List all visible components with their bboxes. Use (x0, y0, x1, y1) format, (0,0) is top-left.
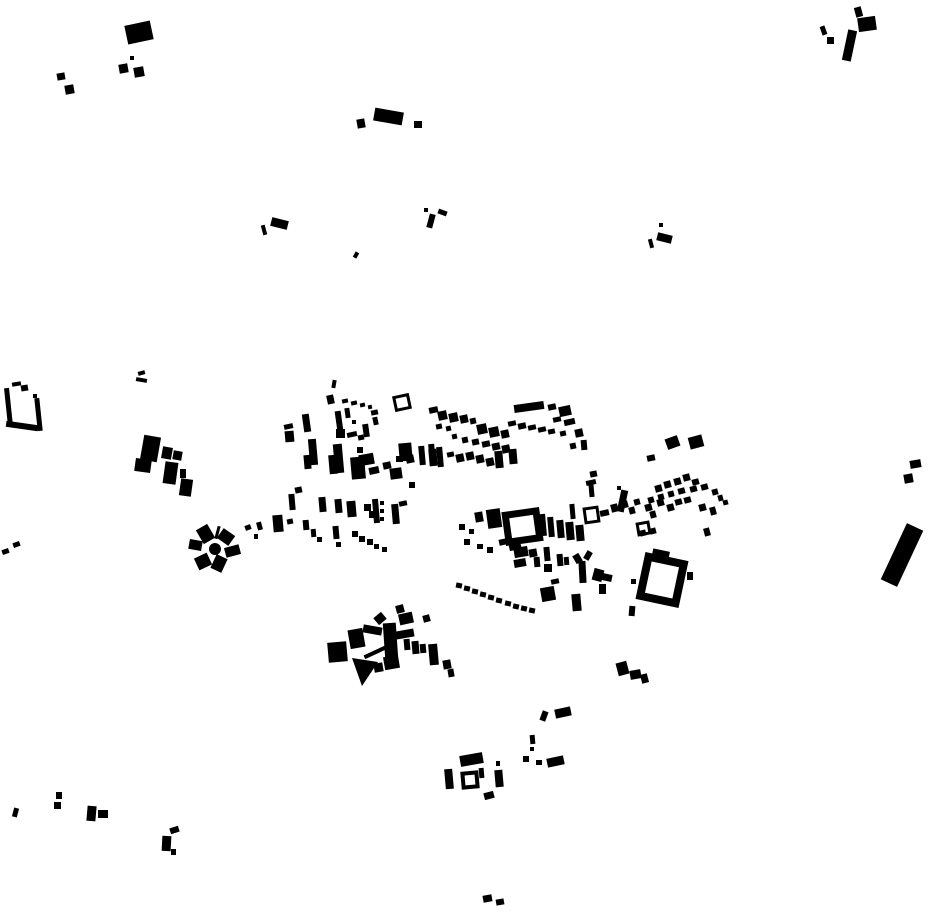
building-footprint (318, 497, 326, 513)
building-footprint (677, 487, 685, 495)
building-footprint (256, 521, 263, 530)
building-footprint (437, 209, 447, 217)
building-footprint (513, 558, 526, 568)
building-footprint (703, 527, 711, 536)
building-footprint (303, 455, 311, 470)
building-footprint (683, 496, 691, 504)
building-footprint (536, 760, 542, 765)
building-footprint (367, 539, 373, 545)
building-footprint (538, 426, 547, 433)
building-footprint (571, 594, 581, 612)
building-footprint (574, 428, 583, 437)
building-footprint (717, 494, 723, 501)
building-footprint (628, 506, 636, 514)
building-footprint (391, 504, 400, 525)
building-footprint (476, 423, 488, 435)
building-footprint (564, 557, 570, 565)
building-footprint (359, 536, 365, 542)
building-footprint (691, 478, 699, 486)
building-footprint (456, 582, 463, 588)
building-footprint (210, 554, 227, 573)
building-footprint (162, 836, 172, 851)
building-footprint (640, 673, 649, 684)
building-footprint (352, 658, 378, 686)
building-footprint (523, 756, 529, 762)
building-footprint (272, 515, 283, 533)
building-footprint (547, 403, 556, 411)
building-footprint (673, 477, 682, 486)
building-footprint (437, 410, 448, 421)
building-footprint (56, 72, 65, 80)
building-footprint (508, 420, 517, 427)
building-footprint (459, 414, 468, 423)
building-footprint (610, 503, 619, 513)
building-footprint (373, 612, 386, 625)
building-footprint (667, 490, 674, 497)
building-footprint (674, 498, 682, 506)
building-footprint (194, 553, 212, 571)
building-footprint (428, 406, 438, 414)
building-footprint (134, 458, 152, 473)
building-footprint (469, 417, 476, 424)
building-footprint (459, 752, 484, 767)
building-footprint (428, 644, 439, 666)
building-footprint (396, 456, 403, 462)
building-footprint (420, 644, 427, 653)
building-footprint (285, 431, 295, 443)
building-footprint (629, 606, 636, 616)
building-footprint (180, 469, 186, 478)
building-footprint (448, 412, 459, 423)
building-footprint (124, 21, 153, 45)
building-footprint (179, 478, 193, 497)
building-footprint (436, 423, 443, 429)
building-footprint (169, 826, 179, 834)
building-footprint (136, 377, 148, 383)
building-footprint (353, 251, 359, 258)
building-footprint (494, 770, 503, 788)
building-footprint (581, 440, 588, 450)
building-footprint (12, 541, 20, 548)
building-footprint (33, 394, 37, 398)
building-footprint (689, 485, 697, 493)
building-footprint (505, 600, 512, 606)
building-footprint (474, 511, 484, 522)
building-footprint (362, 624, 382, 635)
building-footprint (326, 394, 335, 404)
building-footprint (382, 547, 387, 552)
building-footprint (261, 225, 267, 236)
building-footprint (336, 429, 345, 438)
building-footprint (472, 588, 479, 594)
building-footprint (414, 121, 422, 128)
building-footprint (311, 529, 317, 537)
building-footprint (528, 424, 537, 431)
building-footprint (644, 503, 653, 512)
building-footprint (140, 435, 161, 463)
building-footprint (334, 499, 342, 514)
building-footprint (356, 118, 365, 128)
building-footprint (857, 16, 877, 32)
building-footprint (395, 628, 414, 639)
building-footprint (368, 466, 379, 475)
building-footprint (482, 894, 492, 902)
building-footprint (399, 500, 408, 507)
building-footprint (709, 506, 717, 515)
building-footprint (477, 544, 483, 549)
building-footprint (86, 806, 96, 822)
building-footprint (530, 735, 536, 744)
building-footprint (539, 710, 548, 721)
building-footprint (588, 484, 594, 497)
building-footprint (270, 217, 289, 230)
building-footprint (422, 614, 431, 623)
building-footprint (161, 446, 173, 460)
building-footprint (556, 554, 563, 566)
building-footprint (521, 605, 528, 611)
building-footprint (471, 438, 479, 445)
building-footprint (344, 408, 350, 419)
building-footprint (447, 669, 454, 678)
building-footprint (563, 418, 575, 426)
building-footprint (827, 37, 834, 44)
building-footprint (302, 414, 311, 433)
building-footprint (546, 755, 564, 767)
building-footprint (629, 669, 641, 680)
building-footprint (56, 792, 62, 799)
building-footprint (543, 547, 550, 561)
building-footprint (382, 461, 391, 470)
building-footprint (21, 384, 29, 391)
building-footprint (98, 810, 108, 818)
building-footprint (303, 520, 310, 530)
building-footprint (659, 223, 663, 227)
building-footprint (404, 639, 411, 650)
building-footprint (347, 431, 358, 438)
building-footprint (383, 655, 400, 670)
building-footprint (508, 449, 517, 465)
building-footprint (631, 579, 636, 584)
figure-ground-map (0, 0, 930, 924)
building-footprint (244, 524, 251, 531)
building-footprint (544, 564, 552, 572)
building-footprint (479, 768, 485, 778)
building-footprint (722, 499, 728, 505)
building-footprint (534, 557, 541, 567)
building-footprint (351, 400, 358, 405)
building-footprint (357, 447, 363, 453)
building-footprint (447, 451, 455, 457)
building-footprint (494, 451, 503, 469)
building-footprint (317, 537, 322, 542)
building-footprint (54, 802, 61, 809)
building-footprint (288, 494, 295, 510)
building-footprint (491, 442, 500, 451)
building-footprint (389, 467, 402, 480)
building-footprint (599, 509, 609, 517)
building-footprint (554, 706, 572, 718)
building-footprint (698, 503, 707, 512)
building-footprint (854, 6, 863, 17)
building-footprint (373, 108, 404, 126)
building-footprint (666, 503, 675, 512)
building-footprint (409, 482, 415, 488)
building-footprint (350, 456, 366, 479)
building-footprint (558, 405, 572, 417)
building-footprint (352, 531, 358, 537)
building-footprint (459, 524, 465, 530)
building-footprint (485, 457, 494, 466)
building-footprint (411, 641, 419, 655)
building-footprint (465, 451, 474, 460)
building-footprint (513, 603, 520, 609)
building-footprint (374, 544, 379, 549)
building-footprint (287, 518, 294, 524)
building-footprint (163, 461, 179, 485)
building-footprint (380, 501, 384, 505)
building-footprint (617, 486, 621, 490)
building-footprint (583, 550, 593, 561)
building-footprint (12, 381, 22, 387)
building-footprint (487, 547, 493, 553)
building-footprint (368, 405, 373, 410)
building-footprint (405, 454, 414, 463)
building-footprint (589, 470, 597, 477)
building-footprint (4, 388, 13, 426)
building-footprint (371, 409, 379, 415)
building-footprint (496, 898, 505, 905)
building-footprint (514, 401, 545, 413)
building-footprint (881, 523, 924, 587)
building-footprint (488, 426, 500, 438)
building-footprint (398, 612, 414, 626)
building-footprint (530, 747, 534, 751)
building-footprint (842, 29, 857, 61)
building-footprint (656, 232, 672, 243)
building-footprint (648, 239, 654, 249)
building-footprint (188, 539, 203, 551)
building-footprint (616, 661, 630, 676)
building-footprint (372, 417, 379, 426)
building-footprint (528, 548, 537, 557)
building-footprint (373, 662, 383, 672)
building-footprint (372, 499, 380, 523)
building-footprint (464, 585, 471, 591)
building-footprint (548, 428, 556, 434)
building-footprint (687, 572, 693, 580)
building-footprint (64, 84, 74, 94)
building-footprint (446, 426, 452, 432)
building-footprint (475, 454, 484, 463)
building-footprint (462, 772, 477, 787)
building-footprint (578, 561, 586, 583)
building-footprint (496, 761, 500, 766)
building-footprint (481, 440, 490, 448)
building-footprint (342, 398, 349, 403)
building-footprint (380, 517, 384, 521)
building-footprint (380, 509, 384, 513)
building-footprint (461, 436, 468, 443)
building-footprint (209, 543, 221, 555)
building-footprint (517, 422, 526, 430)
building-footprint (569, 504, 575, 519)
building-footprint (601, 573, 612, 582)
building-footprint (496, 597, 503, 603)
building-footprint (903, 473, 913, 483)
building-footprint (560, 430, 567, 436)
building-footprint (682, 473, 691, 482)
building-footprint (575, 525, 584, 542)
building-footprint (556, 520, 565, 539)
building-footprint (488, 594, 495, 600)
building-footprint (6, 421, 39, 431)
building-footprint (130, 56, 134, 60)
building-footprint (654, 484, 663, 493)
building-footprint (1, 548, 9, 555)
building-footprint (529, 607, 536, 613)
building-footprint (665, 435, 681, 450)
building-footprint (540, 586, 556, 602)
building-footprint (599, 584, 606, 594)
building-footprint (649, 510, 657, 518)
building-footprint (569, 442, 576, 449)
building-footprint (505, 511, 539, 542)
building-footprint (464, 539, 470, 545)
building-footprint (364, 504, 371, 511)
building-footprint (12, 808, 19, 818)
building-footprint (424, 208, 428, 212)
building-footprint (909, 459, 921, 469)
building-footprint (172, 450, 182, 460)
building-footprint (820, 25, 828, 35)
building-footprint (358, 434, 365, 440)
building-footprint (383, 623, 398, 660)
building-footprint (254, 534, 258, 539)
building-footprint (426, 213, 435, 228)
building-footprint (394, 395, 410, 411)
building-footprint (428, 444, 436, 464)
building-footprint (584, 507, 599, 523)
building-footprint (284, 423, 294, 430)
building-footprint (640, 557, 684, 604)
building-footprint (444, 769, 454, 790)
building-footprint (633, 498, 640, 505)
building-footprint (486, 508, 503, 529)
building-footprint-canvas (0, 0, 930, 924)
building-footprint (331, 380, 336, 389)
building-footprint (171, 849, 176, 855)
building-footprint (352, 420, 356, 424)
building-footprint (328, 455, 338, 475)
building-footprint (294, 486, 302, 493)
building-footprint (455, 453, 464, 462)
building-footprint (469, 529, 474, 534)
building-footprint (360, 403, 366, 408)
building-footprint (395, 604, 405, 614)
building-footprint (118, 63, 128, 73)
building-footprint (332, 526, 339, 539)
building-footprint (565, 522, 575, 541)
building-footprint (133, 66, 145, 78)
building-footprint (480, 591, 487, 597)
building-footprint (553, 416, 562, 423)
building-footprint (217, 528, 235, 546)
building-footprint (646, 454, 655, 462)
building-footprint (551, 578, 560, 585)
building-footprint (224, 544, 241, 558)
building-footprint (500, 429, 509, 438)
building-footprint (711, 488, 718, 495)
building-footprint (547, 517, 555, 537)
building-footprint (442, 659, 451, 669)
building-footprint (336, 542, 341, 547)
building-footprint (700, 483, 708, 491)
building-footprint (663, 480, 672, 489)
building-footprint (138, 370, 146, 376)
building-footprint (418, 446, 426, 465)
building-footprint (688, 434, 705, 449)
building-footprint (452, 434, 458, 440)
building-footprint (647, 496, 654, 503)
building-footprint (327, 641, 348, 663)
building-footprint (346, 501, 356, 518)
building-footprint (335, 411, 344, 432)
building-footprint (483, 791, 494, 800)
